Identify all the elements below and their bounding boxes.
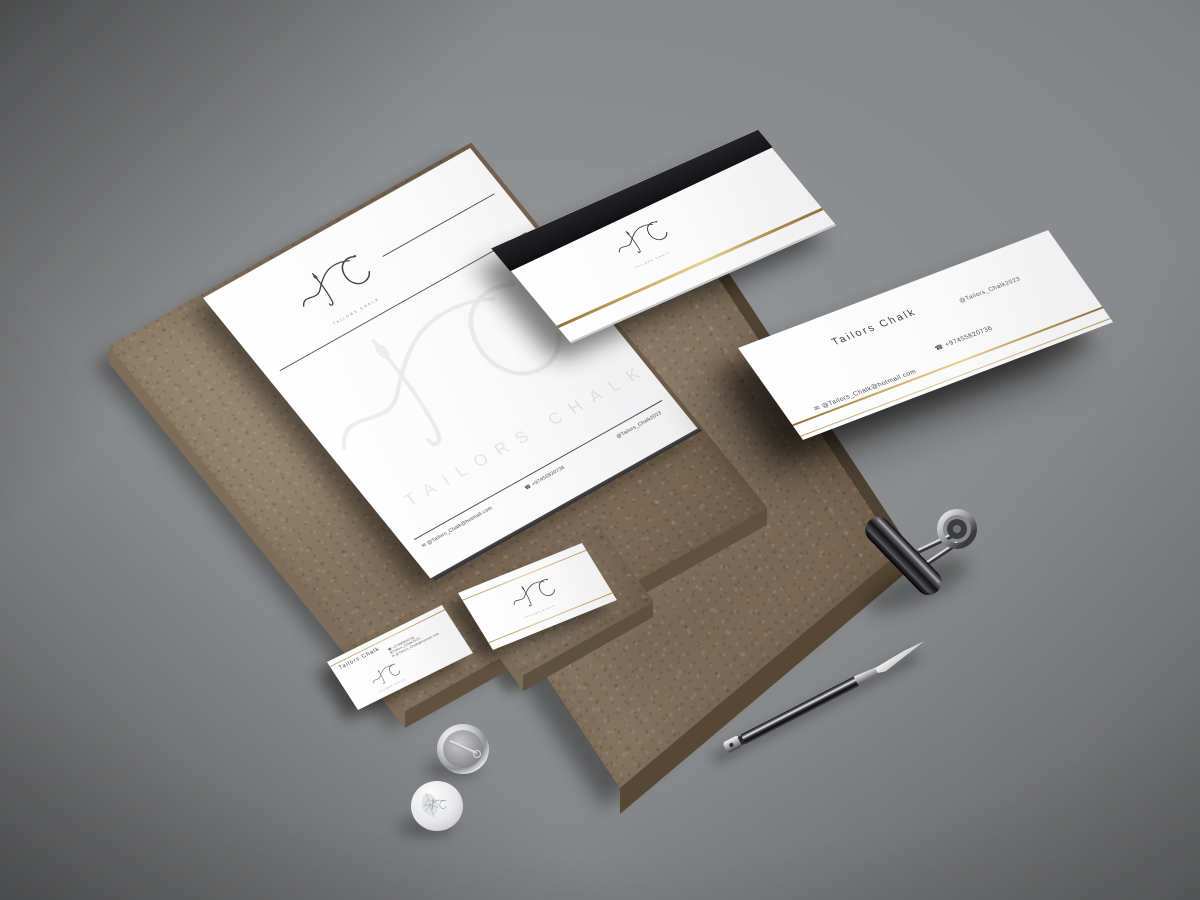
pin-clasp bbox=[473, 750, 481, 758]
letterhead-footer-phone: +97455820736 bbox=[531, 465, 566, 487]
tc-monogram-logo bbox=[502, 570, 569, 617]
card-back-phone: +97455820736 bbox=[943, 324, 994, 348]
letterhead-footer-social: @Tailors_Chalk2023 bbox=[615, 410, 663, 439]
pin-button-back bbox=[437, 724, 489, 774]
tc-monogram-logo bbox=[424, 797, 450, 813]
pin-button-front bbox=[411, 781, 463, 831]
stationery-branding-mockup: Tailors Chalk Tailors Chalk ✉ @Tailors_C… bbox=[0, 0, 1200, 900]
card-back-social: @Tailors_Chalk2023 bbox=[958, 276, 1022, 304]
phone-icon: ☎ bbox=[933, 343, 945, 352]
card-back-title: Tailors Chalk bbox=[829, 307, 919, 348]
binder-clip bbox=[862, 492, 992, 616]
letterhead-top-rule bbox=[382, 193, 494, 256]
